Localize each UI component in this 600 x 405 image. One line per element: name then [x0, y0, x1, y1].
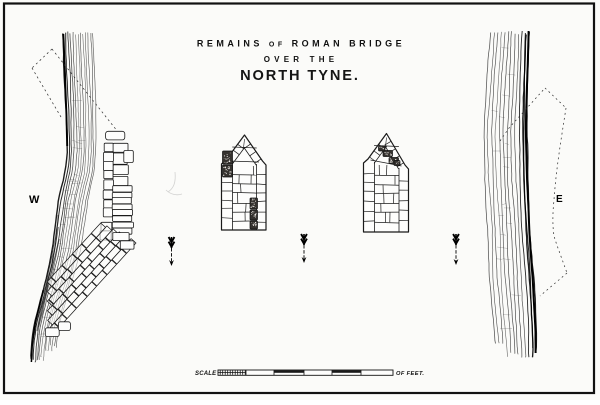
svg-text:OF FEET.: OF FEET. [396, 371, 424, 377]
svg-text:W: W [29, 194, 40, 206]
svg-text:OVER THE: OVER THE [264, 55, 339, 64]
svg-text:NORTH TYNE.: NORTH TYNE. [240, 68, 360, 84]
svg-text:E: E [556, 194, 563, 205]
svg-text:REMAINS OF ROMAN BRIDGE: REMAINS OF ROMAN BRIDGE [197, 39, 405, 49]
svg-text:SCALE: SCALE [195, 371, 217, 377]
